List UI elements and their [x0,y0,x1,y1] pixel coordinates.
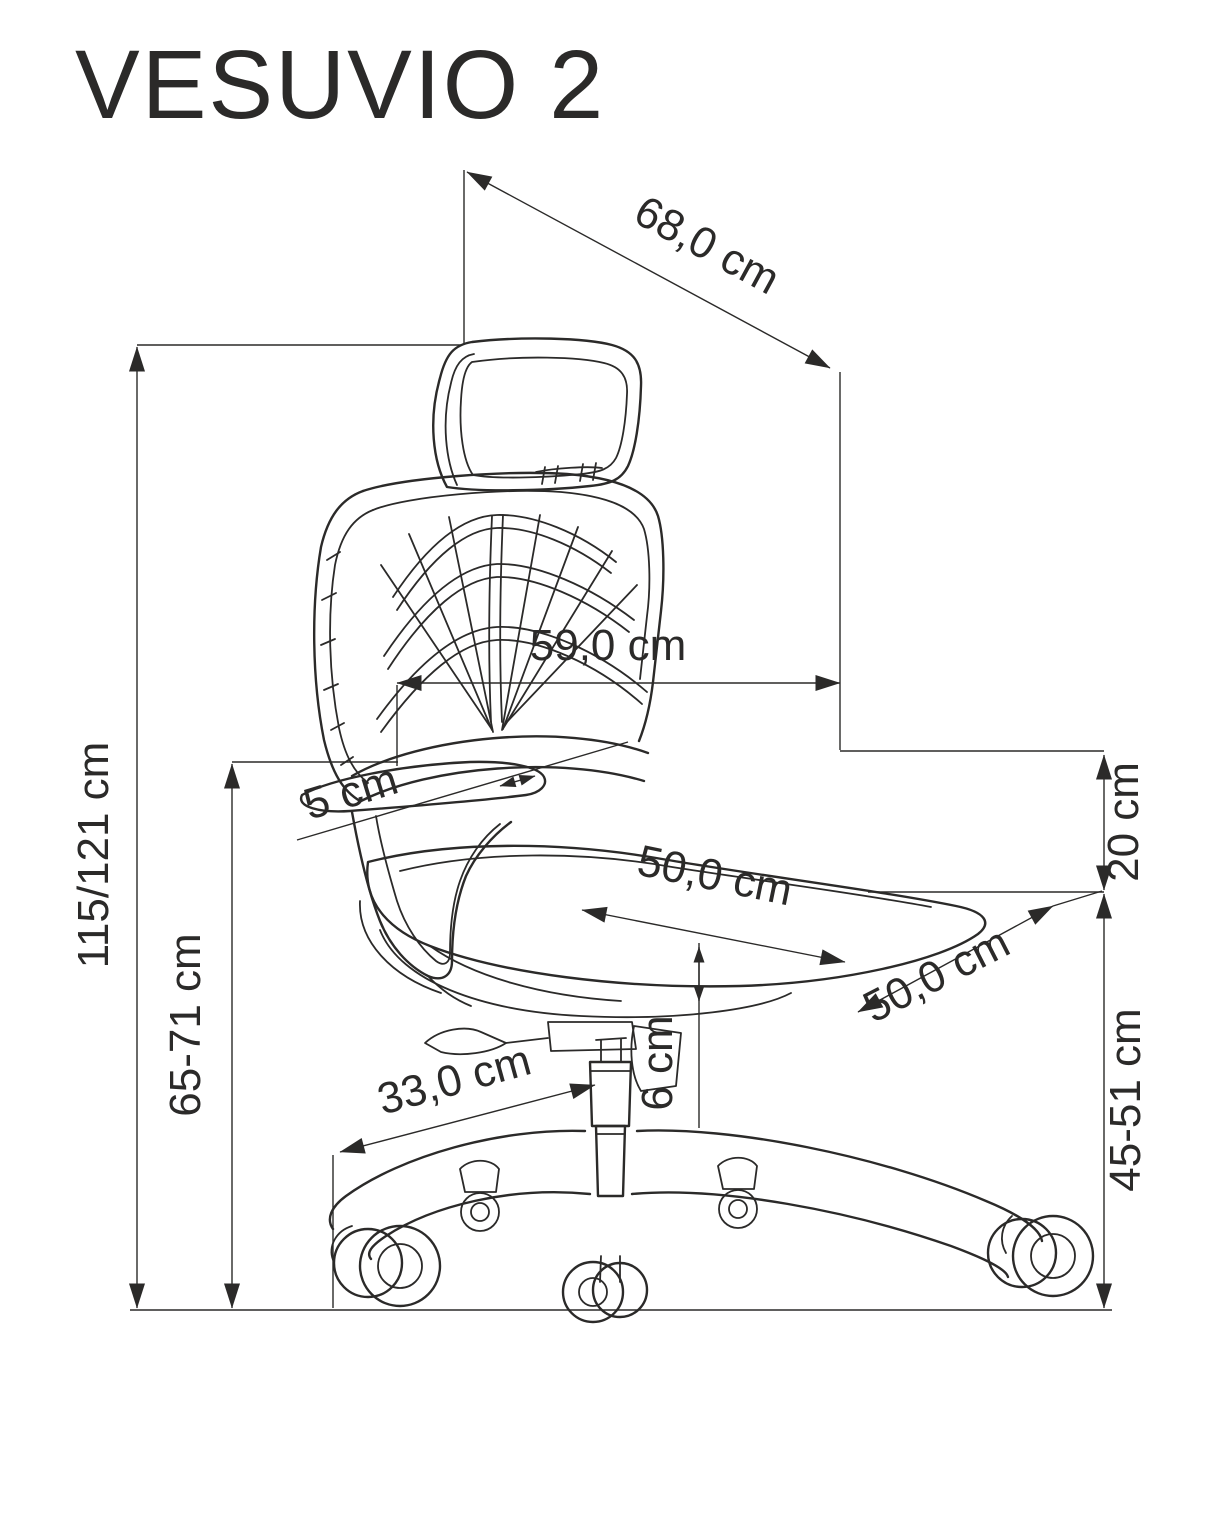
dim-base-leg: 33,0 cm [333,1036,595,1308]
dim-total-width-label: 68,0 cm [626,186,787,304]
dim-base-leg-label: 33,0 cm [372,1036,536,1125]
page-title: VESUVIO 2 [75,30,605,139]
chair-line-art [301,338,1093,1322]
base-star-legs [330,1130,1042,1277]
dim-seat-width: 50,0 cm [582,836,845,962]
dim-backrest-drop: 20 cm [868,755,1148,892]
dimension-annotations: 115/121 cm 65-71 cm 68,0 cm 59,0 cm 5 cm [69,170,1150,1310]
dim-armrest-height: 65-71 cm [161,762,398,1308]
dim-seat-depth-label: 50,0 cm [856,918,1018,1033]
dim-armrest-width-label: 5 cm [298,755,404,830]
dim-total-height-label: 115/121 cm [69,742,118,969]
dim-cushion-thickness-label: 6 cm [633,1015,682,1110]
gas-lift-column [590,1038,631,1196]
dim-backrest-drop-label: 20 cm [1099,762,1148,882]
dim-armrest-width: 5 cm [297,742,628,840]
dim-seat-height: 45-51 cm [1101,894,1150,1308]
chair-dimension-diagram: 115/121 cm 65-71 cm 68,0 cm 59,0 cm 5 cm [0,0,1225,1533]
dim-seat-depth: 50,0 cm [856,891,1102,1032]
dim-seat-height-label: 45-51 cm [1101,1008,1150,1191]
dim-backrest-width: 59,0 cm [397,621,1104,766]
caster-wheels [332,1216,1093,1322]
dim-cushion-thickness: 6 cm [633,943,699,1128]
dim-backrest-width-label: 59,0 cm [530,621,687,670]
dim-armrest-height-label: 65-71 cm [161,933,210,1116]
headrest [433,338,641,490]
technical-drawing-page: 115/121 cm 65-71 cm 68,0 cm 59,0 cm 5 cm [0,0,1225,1533]
dim-seat-width-label: 50,0 cm [633,836,796,915]
